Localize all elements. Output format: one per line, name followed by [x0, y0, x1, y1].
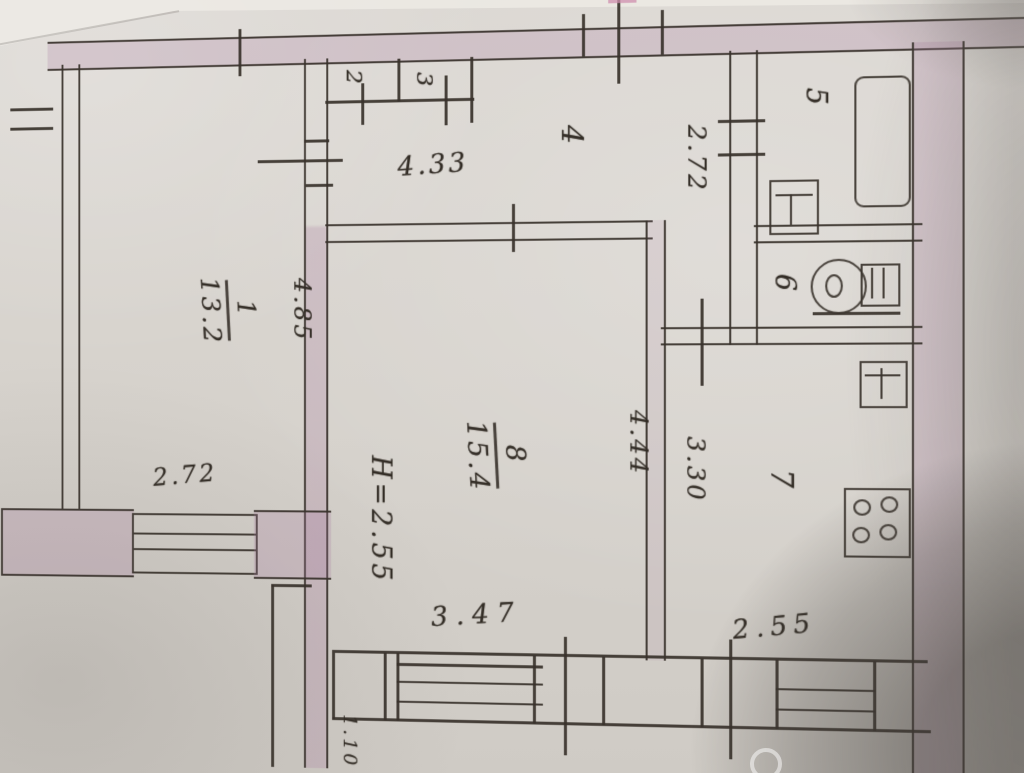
cistern-detail: [883, 268, 885, 299]
fraction-line: [493, 423, 499, 489]
dimension-tick: [361, 83, 363, 125]
wall-segment-line: [701, 658, 704, 727]
washbasin-icon: [769, 179, 819, 235]
room-8-area: 15.4: [463, 420, 493, 493]
dimension-tick: [239, 29, 241, 76]
wall-segment-line: [602, 657, 605, 725]
dimension-tick: [718, 119, 765, 122]
wall-room1-room8: [304, 58, 328, 768]
window-glazing-line: [134, 548, 256, 551]
dimension-tick: [701, 299, 704, 386]
dim-room8-width: 3.47: [430, 599, 523, 631]
room-1-number: 1: [233, 299, 259, 320]
toilet-cistern-icon: [861, 263, 901, 306]
fraction-line: [225, 280, 230, 341]
floor-plan-drawing: 4.33 4 2.72 5 6 2 3 1 13.2 4.85 2.72 8 1…: [20, 0, 1024, 773]
stove-burner: [852, 527, 870, 544]
dimension-tick: [718, 153, 765, 156]
dim-ceiling-height: H=2.55: [367, 455, 393, 584]
kitchen-sink-detail: [880, 368, 882, 399]
dimension-tick: [304, 139, 329, 142]
dimension-tick: [617, 0, 620, 84]
stove-burner: [853, 499, 871, 516]
room-5-label: 5: [801, 87, 829, 108]
washbasin-detail: [790, 194, 792, 225]
dim-kitchen-width: 3.30: [683, 436, 707, 502]
window-glazing-line: [775, 708, 875, 712]
room-8-number: 8: [501, 444, 529, 465]
balcony-door-jamb: [332, 650, 334, 719]
window-frame-line: [775, 660, 778, 729]
room-6-label: 6: [770, 274, 798, 295]
window-frame-line: [533, 655, 535, 723]
closet-right-wall: [470, 57, 472, 123]
room-8-area-label: 8 15.4: [462, 406, 531, 505]
outer-wall-right: [912, 41, 965, 773]
window-room1: [132, 513, 258, 575]
closet-divider-wall: [397, 59, 399, 102]
dimension-tick: [512, 204, 514, 252]
dim-balcony-door: 1.10: [340, 714, 358, 768]
window-glazing-line: [396, 681, 542, 686]
stove-burner: [880, 496, 898, 513]
window-frame-line: [873, 661, 876, 731]
outer-wall-left: [62, 64, 81, 508]
room-1-area: 13.2: [197, 277, 225, 347]
dimension-tick: [582, 14, 585, 56]
kitchen-sink-detail: [865, 374, 901, 376]
wall-bottom-outer: [332, 717, 931, 733]
window-frame-line: [396, 663, 542, 668]
toilet-base-line: [813, 312, 901, 315]
outer-wall-top: [48, 16, 1024, 71]
dimension-tick: [10, 127, 53, 130]
dim-room8-depth: 4.44: [626, 410, 650, 476]
window-glazing-line: [775, 688, 875, 692]
dim-bath-corridor: 2.72: [684, 124, 710, 193]
balcony-side-wall: [271, 585, 273, 767]
kitchen-sink-icon: [860, 361, 908, 408]
stove-icon: [844, 488, 911, 558]
room-4-label: 4: [556, 125, 586, 148]
balcony-side-wall: [271, 584, 312, 587]
toilet-bowl-inner: [825, 274, 843, 298]
wall-bottom-outer: [335, 650, 928, 663]
dimension-tick: [306, 184, 333, 187]
room-1-area-label: 1 13.2: [196, 264, 260, 356]
dimension-tick: [564, 637, 567, 755]
wall-room1-bottom: [1, 508, 134, 577]
dimension-tick: [661, 10, 664, 55]
pink-pen-mark: [608, 0, 636, 3]
room-3-label: 3: [412, 72, 435, 90]
dimension-tick: [10, 108, 53, 111]
window-glazing-line: [396, 701, 542, 706]
stove-burner: [879, 524, 897, 541]
window-glazing-line: [134, 533, 256, 536]
bathtub-icon: [854, 75, 911, 207]
dim-hall-width: 4.33: [397, 149, 469, 181]
dimension-tick: [729, 639, 732, 759]
washbasin-detail: [775, 194, 812, 197]
dimension-tick: [258, 159, 343, 163]
cistern-detail: [871, 268, 873, 299]
window-frame-line: [384, 653, 386, 720]
wall-hall-bathroom: [729, 50, 758, 345]
dim-room1-width: 2.72: [152, 460, 218, 490]
dim-kitchen-bottom: 2.55: [731, 610, 818, 644]
wall-room1-bottom: [254, 510, 331, 580]
room-2-label: 2: [342, 69, 364, 87]
dim-room1-depth: 4.85: [290, 278, 313, 343]
dimension-tick: [445, 75, 447, 125]
scanned-floorplan-photo: 4.33 4 2.72 5 6 2 3 1 13.2 4.85 2.72 8 1…: [0, 0, 1024, 773]
wall-room8-top: [325, 220, 652, 243]
room-7-label: 7: [766, 469, 796, 491]
